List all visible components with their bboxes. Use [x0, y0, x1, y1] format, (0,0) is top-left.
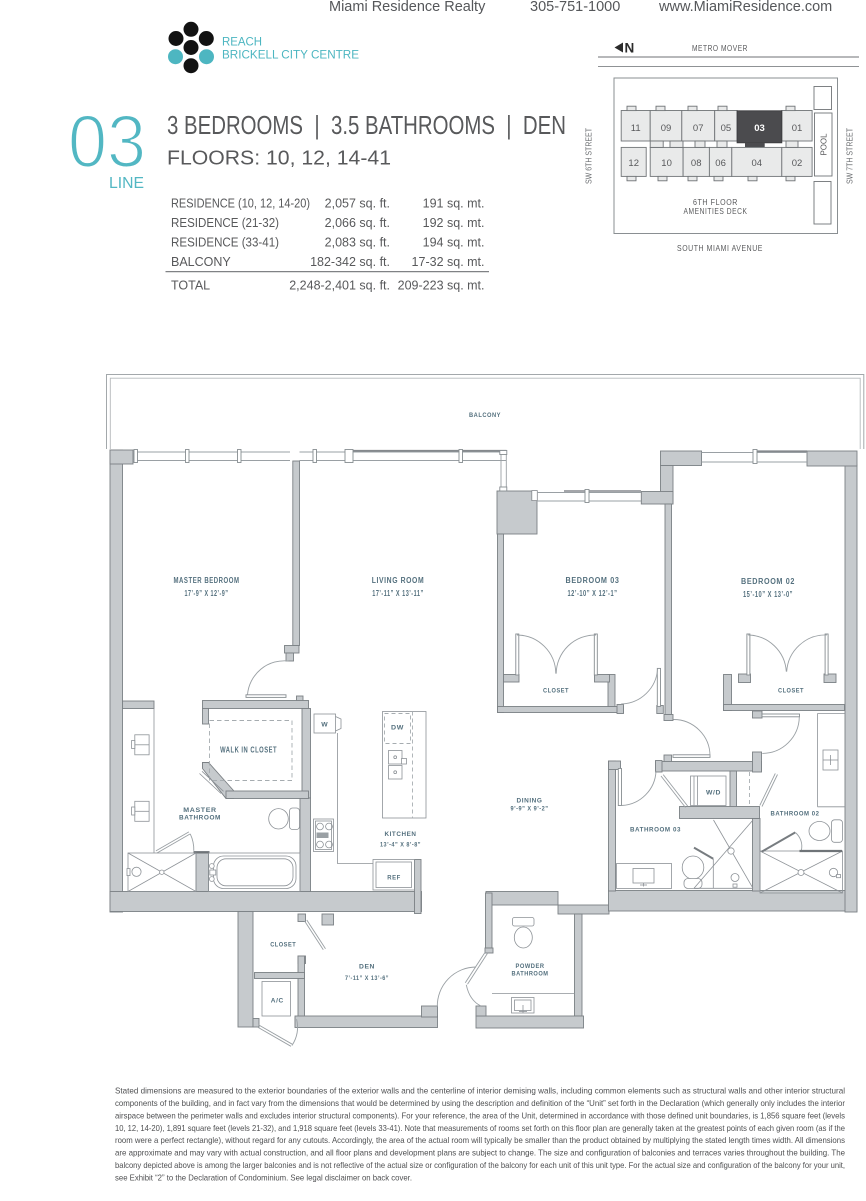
- svg-text:components of the building, an: components of the building, and in fact …: [115, 1098, 845, 1108]
- svg-text:15’-10” X 13’-0”: 15’-10” X 13’-0”: [743, 590, 793, 599]
- svg-text:MASTER BEDROOM: MASTER BEDROOM: [174, 576, 240, 585]
- svg-text:BATHROOM: BATHROOM: [179, 815, 221, 822]
- svg-text:CLOSET: CLOSET: [778, 688, 804, 695]
- svg-text:FLOORS: 10, 12, 14-41: FLOORS: 10, 12, 14-41: [167, 148, 391, 170]
- svg-text:see Exhibit “2” to the Declara: see Exhibit “2” to the Declaration of Co…: [115, 1172, 412, 1182]
- svg-text:W/D: W/D: [706, 790, 721, 797]
- svg-text:BALCONY: BALCONY: [171, 255, 231, 269]
- svg-text:SW 7TH STREET: SW 7TH STREET: [846, 128, 855, 184]
- svg-text:REF: REF: [387, 875, 401, 882]
- svg-text:AMENITIES DECK: AMENITIES DECK: [684, 206, 748, 216]
- svg-text:KITCHEN: KITCHEN: [385, 831, 417, 838]
- svg-text:W: W: [321, 722, 328, 729]
- svg-text:are approximate and may vary w: are approximate and may vary with actual…: [115, 1148, 845, 1158]
- svg-text:03: 03: [68, 100, 146, 183]
- svg-text:DEN: DEN: [359, 964, 375, 971]
- svg-text:01: 01: [792, 123, 803, 134]
- svg-text:Miami Residence Realty: Miami Residence Realty: [329, 0, 486, 15]
- svg-text:balcony depicted above is amon: balcony depicted above is among the larg…: [115, 1160, 845, 1170]
- svg-text:11: 11: [631, 123, 641, 134]
- svg-text:METRO MOVER: METRO MOVER: [692, 43, 748, 53]
- svg-text:WALK IN CLOSET: WALK IN CLOSET: [220, 746, 277, 755]
- svg-text:17’-11” X 13’-11”: 17’-11” X 13’-11”: [372, 589, 424, 598]
- svg-text:182-342 sq. ft.: 182-342 sq. ft.: [310, 255, 390, 269]
- svg-text:9’-9” X 9’-2”: 9’-9” X 9’-2”: [511, 806, 549, 813]
- svg-text:07: 07: [693, 123, 704, 134]
- svg-text:192 sq. mt.: 192 sq. mt.: [423, 216, 485, 230]
- svg-text:POWDER: POWDER: [516, 963, 545, 970]
- svg-text:REACH: REACH: [222, 36, 262, 48]
- svg-text:02: 02: [792, 158, 803, 169]
- svg-text:2,057 sq. ft.: 2,057 sq. ft.: [325, 197, 390, 211]
- svg-text:SOUTH MIAMI AVENUE: SOUTH MIAMI AVENUE: [677, 243, 763, 253]
- svg-text:BRICKELL CITY CENTRE: BRICKELL CITY CENTRE: [222, 50, 359, 62]
- svg-text:airspace between the perimeter: airspace between the perimeter walls and…: [115, 1110, 845, 1120]
- svg-text:10, 12, 14-20), 1,891 square f: 10, 12, 14-20), 1,891 square feet (level…: [115, 1123, 845, 1133]
- svg-text:2,248-2,401 sq. ft.: 2,248-2,401 sq. ft.: [289, 279, 390, 293]
- svg-text:RESIDENCE (10, 12, 14-20): RESIDENCE (10, 12, 14-20): [171, 197, 310, 211]
- svg-text:RESIDENCE (33-41): RESIDENCE (33-41): [171, 236, 279, 250]
- svg-text:POOL: POOL: [819, 133, 829, 155]
- svg-text:305-751-1000: 305-751-1000: [530, 0, 620, 15]
- svg-text:2,083 sq. ft.: 2,083 sq. ft.: [325, 236, 390, 250]
- svg-text:12’-10” X 12’-1”: 12’-10” X 12’-1”: [568, 589, 618, 598]
- svg-text:N: N: [625, 41, 635, 56]
- svg-text:RESIDENCE (21-32): RESIDENCE (21-32): [171, 216, 279, 230]
- svg-text:194 sq. mt.: 194 sq. mt.: [423, 236, 485, 250]
- svg-text:08: 08: [691, 158, 702, 169]
- svg-text:04: 04: [752, 158, 763, 169]
- svg-text:DINING: DINING: [517, 798, 543, 805]
- svg-text:17’-9” X 12’-9”: 17’-9” X 12’-9”: [185, 589, 229, 598]
- svg-text:3 BEDROOMS | 3.5 BATHROOMS: 3 BEDROOMS | 3.5 BATHROOMS | DEN: [167, 110, 566, 140]
- svg-text:SW 6TH STREET: SW 6TH STREET: [585, 128, 594, 184]
- svg-text:7’-11” X 13’-6”: 7’-11” X 13’-6”: [345, 975, 389, 982]
- svg-text:BEDROOM 03: BEDROOM 03: [566, 576, 620, 585]
- svg-text:BATHROOM: BATHROOM: [512, 971, 549, 978]
- svg-text:CLOSET: CLOSET: [543, 688, 569, 695]
- svg-text:MASTER: MASTER: [183, 807, 217, 814]
- svg-text:BATHROOM 02: BATHROOM 02: [771, 811, 820, 818]
- svg-text:09: 09: [661, 123, 672, 134]
- svg-text:BEDROOM 02: BEDROOM 02: [741, 577, 795, 586]
- svg-text:06: 06: [715, 158, 726, 169]
- svg-text:05: 05: [721, 123, 732, 134]
- svg-text:17-32 sq. mt.: 17-32 sq. mt.: [412, 255, 485, 269]
- svg-text:2,066 sq. ft.: 2,066 sq. ft.: [325, 216, 390, 230]
- svg-text:DW: DW: [391, 725, 404, 732]
- svg-text:CLOSET: CLOSET: [270, 942, 296, 949]
- svg-text:13’-4” X 8’-8”: 13’-4” X 8’-8”: [380, 842, 421, 849]
- svg-text:Stated dimensions are measured: Stated dimensions are measured to the ex…: [115, 1086, 845, 1096]
- svg-text:12: 12: [628, 158, 639, 169]
- svg-text:10: 10: [661, 158, 672, 169]
- svg-text:A/C: A/C: [271, 998, 284, 1005]
- svg-text:209-223 sq. mt.: 209-223 sq. mt.: [398, 279, 485, 293]
- svg-text:BALCONY: BALCONY: [469, 412, 501, 419]
- svg-text:LINE: LINE: [109, 175, 144, 192]
- svg-text:room were a perfect rectangle): room were a perfect rectangle), without …: [115, 1135, 845, 1145]
- svg-text:03: 03: [754, 123, 765, 134]
- svg-text:www.MiamiResidence.com: www.MiamiResidence.com: [658, 0, 832, 15]
- svg-text:191 sq. mt.: 191 sq. mt.: [423, 197, 485, 211]
- svg-text:TOTAL: TOTAL: [171, 279, 210, 293]
- svg-text:LIVING ROOM: LIVING ROOM: [372, 576, 425, 585]
- svg-text:BATHROOM 03: BATHROOM 03: [630, 827, 681, 834]
